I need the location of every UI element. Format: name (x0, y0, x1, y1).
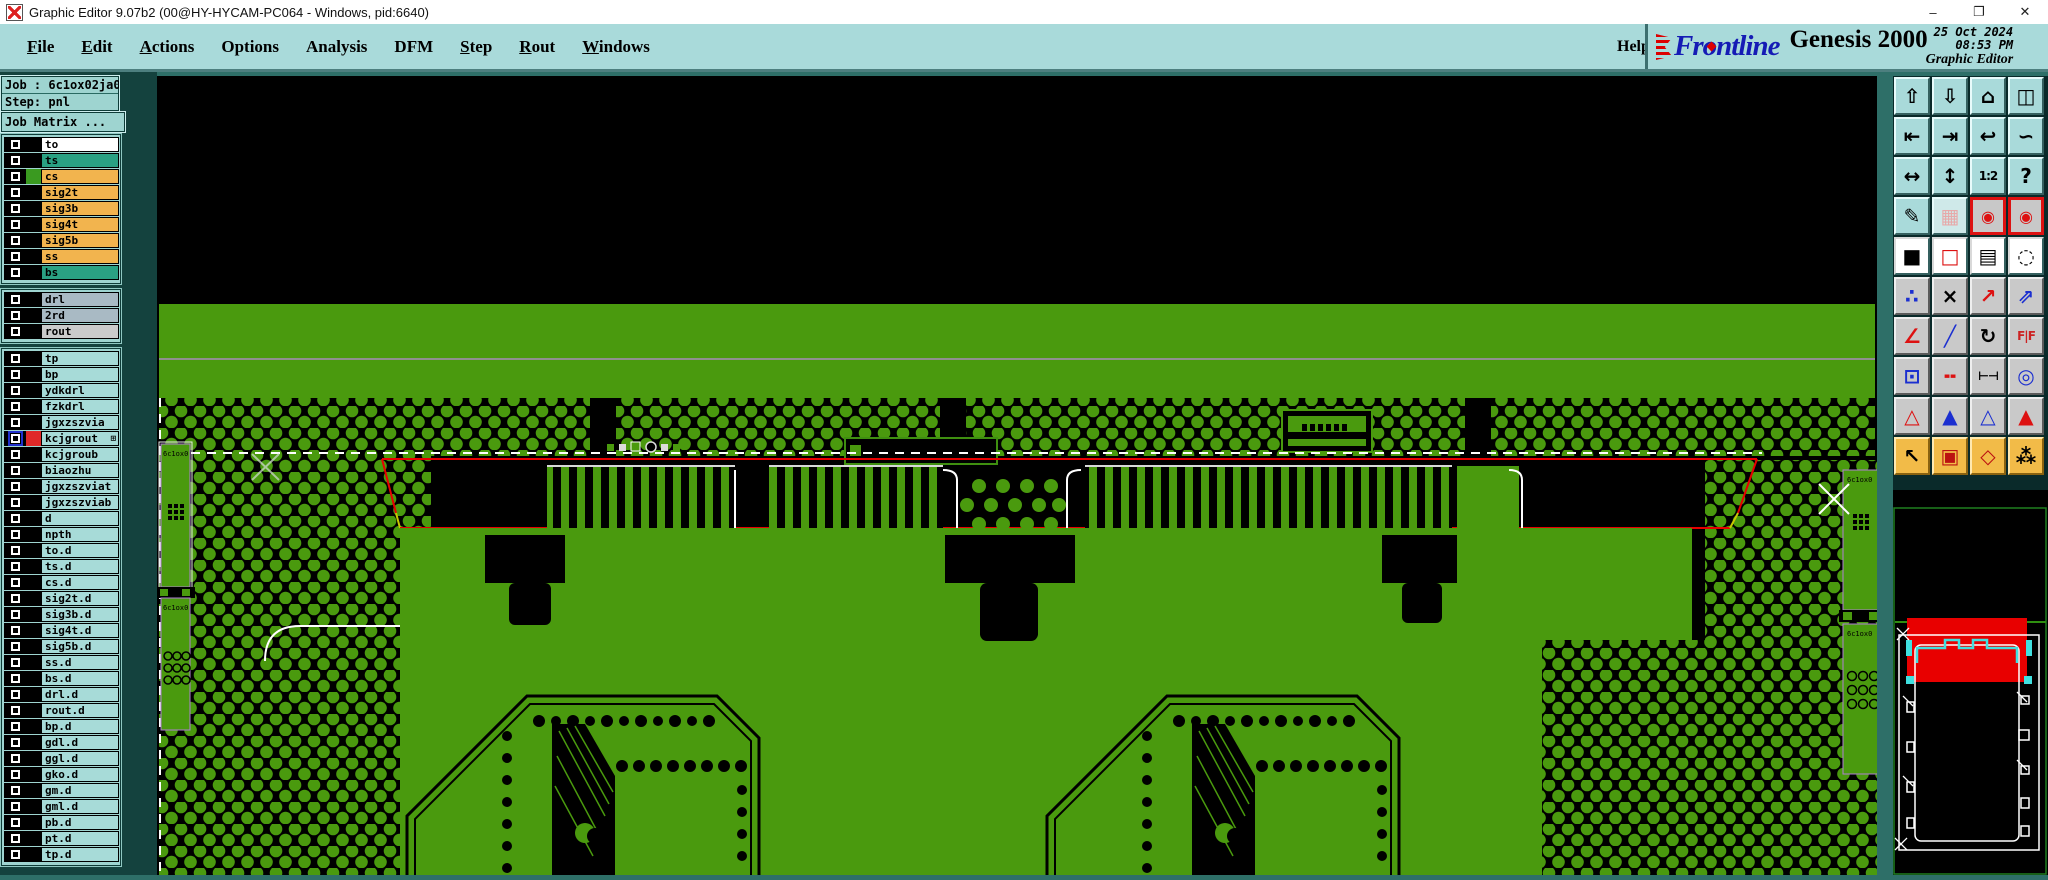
layer-name-label[interactable]: drl.d (41, 687, 119, 702)
layer-name-label[interactable]: tp (41, 351, 119, 366)
move-object-button[interactable]: ↗ (1970, 277, 2006, 315)
layer-name-label[interactable]: to (41, 137, 119, 152)
frame-select-icon: ▣ (1941, 444, 1960, 468)
overview-panel (1893, 490, 2048, 875)
layer-color-swatch[interactable] (26, 527, 41, 542)
layer-visibility-checkbox[interactable] (8, 703, 23, 718)
layer-list: totscssig2tsig3bsig4tsig5bssbsdrl2rdrout… (1, 134, 121, 871)
layer-visibility-checkbox[interactable] (8, 751, 23, 766)
layer-visibility-checkbox[interactable] (8, 527, 23, 542)
zoom-in-view-icon: ⇧ (1904, 84, 1921, 108)
job-info-box: Job : 6c1ox02ja0 Step: pnl (1, 76, 119, 111)
layer-name-label[interactable]: sig3b (41, 201, 119, 216)
layer-row-ss.d[interactable]: ss.d (4, 655, 119, 670)
layer-row-kcjgroub[interactable]: kcjgroub (4, 447, 119, 462)
layer-group: tpbpydkdrlfzkdrljgxzszviakcjgrout⊞kcjgro… (1, 348, 121, 866)
layer-color-swatch[interactable] (26, 463, 41, 478)
main-menu: FileEditActionsOptionsAnalysisDFMStepRou… (0, 37, 650, 57)
capture-dark-button[interactable]: ■ (1894, 237, 1930, 275)
pcb-coupon-box (1282, 410, 1372, 452)
pan-left-button[interactable]: ⇤ (1894, 117, 1930, 155)
layer-visibility-checkbox[interactable] (8, 623, 23, 638)
layer-name-label[interactable]: kcjgrout⊞ (41, 431, 119, 446)
zoom-out-view-icon: ⇩ (1942, 84, 1959, 108)
layer-visibility-checkbox[interactable] (8, 447, 23, 462)
layer-visibility-checkbox[interactable] (8, 799, 23, 814)
undo-view-button[interactable]: ↩ (1970, 117, 2006, 155)
overview-viewport-rect[interactable] (1907, 618, 2027, 682)
layer-row-gko.d[interactable]: gko.d (4, 767, 119, 782)
clock: 25 Oct 202408:53 PM (1934, 26, 2013, 52)
layer-name-label[interactable]: pt.d (41, 831, 119, 846)
layer-row-sig2t.d[interactable]: sig2t.d (4, 591, 119, 606)
frontline-logo: Frontline (1674, 26, 1779, 66)
pcb-copper-band (159, 304, 1875, 398)
layer-visibility-checkbox[interactable] (8, 137, 23, 152)
object-delete-icon: × (1942, 284, 1959, 308)
layer-visibility-checkbox[interactable] (8, 687, 23, 702)
touchup-object-icon: ◎ (2017, 364, 2034, 388)
copy-object-button[interactable]: ⇗ (2008, 277, 2044, 315)
layer-name-label[interactable]: kcjgroub (41, 447, 119, 462)
layer-visibility-checkbox[interactable] (8, 233, 23, 248)
net-connect-icon: ∴ (1905, 284, 1919, 308)
sidebar: Job : 6c1ox02ja0 Step: pnl Job Matrix ..… (0, 72, 157, 875)
layer-visibility-checkbox[interactable] (8, 591, 23, 606)
close-button[interactable]: ✕ (2002, 0, 2048, 24)
product-name: Genesis 2000 (1789, 26, 1927, 54)
layer-visibility-checkbox[interactable] (8, 575, 23, 590)
layer-group: drl2rdrout (1, 289, 121, 343)
layer-name-label[interactable]: gdl.d (41, 735, 119, 750)
move-object-icon: ↗ (1980, 284, 1997, 308)
layer-row-npth[interactable]: npth (4, 527, 119, 542)
measure-line-icon: ╱ (1944, 324, 1956, 348)
layer-visibility-checkbox[interactable] (8, 399, 23, 414)
home-view-button[interactable]: ⌂ (1970, 77, 2006, 115)
layer-color-swatch[interactable] (26, 217, 41, 232)
layer-visibility-checkbox[interactable] (8, 719, 23, 734)
layer-visibility-checkbox[interactable] (8, 292, 23, 307)
layer-color-swatch[interactable] (26, 447, 41, 462)
measure-ruler-button[interactable]: ▤ (1970, 237, 2006, 275)
layer-row-rout[interactable]: rout (4, 324, 119, 339)
layer-row-d[interactable]: d (4, 511, 119, 526)
layer-visibility-checkbox[interactable] (8, 308, 23, 323)
serpentine-view-icon: ∽ (2018, 124, 2035, 148)
layer-name-label[interactable]: ggl.d (41, 751, 119, 766)
layer-name-label[interactable]: 2rd (41, 308, 119, 323)
layer-name-label[interactable]: gko.d (41, 767, 119, 782)
layer-row-ggl.d[interactable]: ggl.d (4, 751, 119, 766)
layer-name-label[interactable]: to.d (41, 543, 119, 558)
layer-row-bs.d[interactable]: bs.d (4, 671, 119, 686)
layer-row-cs.d[interactable]: cs.d (4, 575, 119, 590)
rotate-object-button[interactable]: ↻ (1970, 317, 2006, 355)
frontline-logo-icon (1656, 34, 1672, 60)
zoom-out-view-button[interactable]: ⇩ (1932, 77, 1968, 115)
break-line-button[interactable]: ╍ (1932, 357, 1968, 395)
layer-name-label[interactable]: rout (41, 324, 119, 339)
net-connect-button[interactable]: ∴ (1894, 277, 1930, 315)
layer-name-label[interactable]: sig2t (41, 185, 119, 200)
layer-color-swatch[interactable] (26, 265, 41, 280)
layer-color-swatch[interactable] (26, 431, 41, 446)
layer-visibility-checkbox[interactable] (8, 169, 23, 184)
layer-row-to[interactable]: to (4, 137, 119, 152)
window-title: Graphic Editor 9.07b2 (00@HY-HYCAM-PC064… (29, 5, 429, 20)
layer-color-swatch[interactable] (26, 153, 41, 168)
pan-right-button[interactable]: ⇥ (1932, 117, 1968, 155)
serpentine-view-button[interactable]: ∽ (2008, 117, 2044, 155)
menu-dfm[interactable]: DFM (394, 37, 433, 56)
layer-color-swatch[interactable] (26, 137, 41, 152)
layer-visibility-checkbox[interactable] (8, 671, 23, 686)
minimize-button[interactable]: – (1910, 0, 1956, 24)
context-help-button[interactable]: ? (2008, 157, 2044, 195)
layer-row-drl.d[interactable]: drl.d (4, 687, 119, 702)
layer-visibility-checkbox[interactable] (8, 415, 23, 430)
layer-row-bs[interactable]: bs (4, 265, 119, 280)
layer-name-label[interactable]: jgxzszviab (41, 495, 119, 510)
layer-row-to.d[interactable]: to.d (4, 543, 119, 558)
measure-line-button[interactable]: ╱ (1932, 317, 1968, 355)
layer-row-bp.d[interactable]: bp.d (4, 719, 119, 734)
layer-color-swatch[interactable] (26, 607, 41, 622)
layer-color-swatch[interactable] (26, 399, 41, 414)
menu-edit[interactable]: Edit (81, 37, 112, 56)
layer-color-swatch[interactable] (26, 324, 41, 339)
menu-bar: FileEditActionsOptionsAnalysisDFMStepRou… (0, 24, 2048, 72)
layer-row-bp[interactable]: bp (4, 367, 119, 382)
layer-visibility-checkbox[interactable] (8, 639, 23, 654)
layer-row-pb.d[interactable]: pb.d (4, 815, 119, 830)
layer-name-label[interactable]: tp.d (41, 847, 119, 862)
layer-name-label[interactable]: ss (41, 249, 119, 264)
layer-name-label[interactable]: npth (41, 527, 119, 542)
layer-visibility-checkbox[interactable] (8, 217, 23, 232)
select-mode-b-icon: ▲ (1942, 404, 1957, 428)
layers-display-b-button[interactable]: ◉ (2008, 197, 2044, 235)
layer-row-gdl.d[interactable]: gdl.d (4, 735, 119, 750)
layer-visibility-checkbox[interactable] (8, 495, 23, 510)
layers-display-a-icon: ◉ (1981, 207, 1995, 226)
layer-name-label[interactable]: ss.d (41, 655, 119, 670)
editor-setup-button[interactable]: ✎ (1894, 197, 1930, 235)
layer-name-label[interactable]: sig5b (41, 233, 119, 248)
touchup-object-button[interactable]: ◎ (2008, 357, 2044, 395)
layer-row-jgxzszviab[interactable]: jgxzszviab (4, 495, 119, 510)
layer-color-swatch[interactable] (26, 169, 41, 184)
select-mode-b-button[interactable]: ▲ (1932, 397, 1968, 435)
layer-color-swatch[interactable] (26, 735, 41, 750)
layer-name-label[interactable]: rout.d (41, 703, 119, 718)
rotate-object-icon: ↻ (1980, 324, 1997, 348)
layer-color-swatch[interactable] (26, 591, 41, 606)
layer-row-sig2t[interactable]: sig2t (4, 185, 119, 200)
menu-options[interactable]: Options (221, 37, 279, 56)
pcb-target-box (845, 438, 997, 464)
pointer-select-button[interactable]: ↖ (1894, 437, 1930, 475)
app-icon (6, 4, 23, 21)
layer-visibility-checkbox[interactable] (8, 185, 23, 200)
layer-name-label[interactable]: gml.d (41, 799, 119, 814)
grid-toggle-button[interactable]: ▦ (1932, 197, 1968, 235)
layer-name-label[interactable]: d (41, 511, 119, 526)
layer-row-ss[interactable]: ss (4, 249, 119, 264)
svg-text:6c1ox0: 6c1ox0 (163, 450, 188, 458)
layer-visibility-checkbox[interactable] (8, 463, 23, 478)
layer-color-swatch[interactable] (26, 703, 41, 718)
layer-name-label[interactable]: bs (41, 265, 119, 280)
pcb-canvas[interactable]: 6c1ox0 6c1ox0 6c1ox0 6c1ox0 (157, 76, 1877, 875)
layer-color-swatch[interactable] (26, 751, 41, 766)
layer-row-sig4t.d[interactable]: sig4t.d (4, 623, 119, 638)
layer-visibility-checkbox[interactable] (8, 479, 23, 494)
measure-gap-button[interactable]: ⊢⊣ (1970, 357, 2006, 395)
layer-name-label[interactable]: bs.d (41, 671, 119, 686)
fit-all-icon: ↔ (1904, 164, 1921, 188)
layer-row-sig3b[interactable]: sig3b (4, 201, 119, 216)
layer-visibility-checkbox[interactable] (8, 783, 23, 798)
branding-panel: Frontline Genesis 2000 25 Oct 202408:53 … (1645, 24, 2048, 69)
layer-name-label[interactable]: ydkdrl (41, 383, 119, 398)
layer-visibility-checkbox[interactable] (8, 543, 23, 558)
layer-color-swatch[interactable] (26, 671, 41, 686)
scale-1-2-button[interactable]: 1:2 (1970, 157, 2006, 195)
layer-visibility-checkbox[interactable] (8, 511, 23, 526)
svg-text:6c1ox0: 6c1ox0 (1847, 630, 1872, 638)
net-select-icon: ⁂ (2016, 444, 2036, 468)
select-mode-d-button[interactable]: ▲ (2008, 397, 2044, 435)
layer-visibility-checkbox[interactable] (8, 831, 23, 846)
step-label: Step: pnl (2, 94, 118, 110)
layer-row-sig5b.d[interactable]: sig5b.d (4, 639, 119, 654)
pointer-select-icon: ↖ (1904, 444, 1921, 468)
menu-step[interactable]: Step (460, 37, 492, 56)
layer-color-swatch[interactable] (26, 292, 41, 307)
maximize-button[interactable]: ❐ (1956, 0, 2002, 24)
title-bar: Graphic Editor 9.07b2 (00@HY-HYCAM-PC064… (0, 0, 2048, 25)
layer-color-swatch[interactable] (26, 639, 41, 654)
layer-color-swatch[interactable] (26, 367, 41, 382)
layer-color-swatch[interactable] (26, 185, 41, 200)
menu-file[interactable]: File (27, 37, 54, 56)
layer-row-tp.d[interactable]: tp.d (4, 847, 119, 862)
layer-row-sig4t[interactable]: sig4t (4, 217, 119, 232)
layer-row-biaozhu[interactable]: biaozhu (4, 463, 119, 478)
layer-color-swatch[interactable] (26, 799, 41, 814)
break-line-icon: ╍ (1944, 364, 1956, 388)
layer-color-swatch[interactable] (26, 559, 41, 574)
layer-visibility-checkbox[interactable] (8, 351, 23, 366)
layer-color-swatch[interactable] (26, 479, 41, 494)
menu-analysis[interactable]: Analysis (306, 37, 367, 56)
svg-text:6c1ox0: 6c1ox0 (163, 604, 188, 612)
layer-color-swatch[interactable] (26, 543, 41, 558)
layer-color-swatch[interactable] (26, 415, 41, 430)
resize-object-icon: ⊡ (1904, 364, 1921, 388)
layer-name-label[interactable]: cs.d (41, 575, 119, 590)
layer-row-sig3b.d[interactable]: sig3b.d (4, 607, 119, 622)
measure-gap-icon: ⊢⊣ (1978, 369, 1998, 383)
layer-color-swatch[interactable] (26, 815, 41, 830)
mirror-object-button[interactable]: F|F (2008, 317, 2044, 355)
layer-name-label[interactable]: ts.d (41, 559, 119, 574)
layer-visibility-checkbox[interactable] (8, 735, 23, 750)
layer-expand-icon[interactable]: ⊞ (111, 433, 116, 446)
layer-visibility-checkbox[interactable] (8, 559, 23, 574)
net-select-button[interactable]: ⁂ (2008, 437, 2044, 475)
layer-color-swatch[interactable] (26, 767, 41, 782)
select-mode-c-button[interactable]: △ (1970, 397, 2006, 435)
layer-name-label[interactable]: jgxzszvia (41, 415, 119, 430)
capture-outline-button[interactable]: □ (1932, 237, 1968, 275)
layer-visibility-checkbox[interactable] (8, 367, 23, 382)
zoom-in-view-button[interactable]: ⇧ (1894, 77, 1930, 115)
layer-color-swatch[interactable] (26, 383, 41, 398)
select-mode-d-icon: ▲ (2018, 404, 2033, 428)
pan-right-icon: ⇥ (1942, 124, 1959, 148)
layer-name-label[interactable]: sig2t.d (41, 591, 119, 606)
layer-visibility-checkbox[interactable] (8, 767, 23, 782)
layer-name-label[interactable]: bp (41, 367, 119, 382)
mirror-object-icon: F|F (2017, 329, 2035, 343)
capture-dark-icon: ■ (1903, 244, 1922, 268)
layer-row-fzkdrl[interactable]: fzkdrl (4, 399, 119, 414)
layer-name-label[interactable]: sig4t.d (41, 623, 119, 638)
layer-name-label[interactable]: sig5b.d (41, 639, 119, 654)
layer-row-tp[interactable]: tp (4, 351, 119, 366)
layer-visibility-checkbox[interactable] (8, 383, 23, 398)
layer-name-label[interactable]: sig3b.d (41, 607, 119, 622)
layer-visibility-checkbox[interactable] (8, 201, 23, 216)
measure-angle-icon: ∠ (1903, 324, 1921, 348)
canvas-area: 6c1ox0 6c1ox0 6c1ox0 6c1ox0 (157, 76, 1877, 875)
layer-color-swatch[interactable] (26, 308, 41, 323)
layer-row-pt.d[interactable]: pt.d (4, 831, 119, 846)
menu-rout[interactable]: Rout (519, 37, 555, 56)
layer-row-sig5b[interactable]: sig5b (4, 233, 119, 248)
layer-row-ts[interactable]: ts (4, 153, 119, 168)
scale-1-2-icon: 1:2 (1979, 169, 1998, 183)
pcb-coupon-left: 6c1ox0 6c1ox0 (157, 442, 195, 730)
layer-color-swatch[interactable] (26, 249, 41, 264)
layer-color-swatch[interactable] (26, 783, 41, 798)
layer-name-label[interactable]: gm.d (41, 783, 119, 798)
copy-object-icon: ⇗ (2018, 284, 2035, 308)
grid-toggle-icon: ▦ (1941, 204, 1960, 228)
menu-windows[interactable]: Windows (582, 37, 650, 56)
svg-text:6c1ox0: 6c1ox0 (1847, 476, 1872, 484)
layer-row-cs[interactable]: cs (4, 169, 119, 184)
product-subtitle: Graphic Editor (1789, 52, 2013, 68)
layers-display-b-icon: ◉ (2019, 207, 2033, 226)
layer-color-swatch[interactable] (26, 233, 41, 248)
overview-navigator[interactable] (1893, 490, 2048, 875)
layer-color-swatch[interactable] (26, 847, 41, 862)
layer-name-label[interactable]: jgxzszviat (41, 479, 119, 494)
polygon-select-icon: ◇ (1980, 444, 1995, 468)
context-help-icon: ? (2020, 164, 2032, 188)
layer-color-swatch[interactable] (26, 623, 41, 638)
layer-row-ts.d[interactable]: ts.d (4, 559, 119, 574)
layer-row-jgxzszviat[interactable]: jgxzszviat (4, 479, 119, 494)
job-matrix-button[interactable]: Job Matrix ... (1, 112, 125, 132)
layer-row-jgxzszvia[interactable]: jgxzszvia (4, 415, 119, 430)
layer-name-label[interactable]: sig4t (41, 217, 119, 232)
layer-visibility-checkbox[interactable] (8, 153, 23, 168)
layer-color-swatch[interactable] (26, 575, 41, 590)
layer-color-swatch[interactable] (26, 655, 41, 670)
menu-actions[interactable]: Actions (140, 37, 195, 56)
center-view-icon: ↕ (1942, 164, 1959, 188)
select-mode-a-button[interactable]: △ (1894, 397, 1930, 435)
layer-color-swatch[interactable] (26, 511, 41, 526)
split-window-xy-icon: ◫ (2017, 84, 2036, 108)
layer-row-gml.d[interactable]: gml.d (4, 799, 119, 814)
layer-visibility-checkbox[interactable] (8, 815, 23, 830)
layer-row-drl[interactable]: drl (4, 292, 119, 307)
layer-name-label[interactable]: bp.d (41, 719, 119, 734)
pad-dashed-icon: ◌ (2017, 244, 2034, 268)
undo-view-icon: ↩ (1980, 124, 1997, 148)
layers-display-a-button[interactable]: ◉ (1970, 197, 2006, 235)
layer-name-label[interactable]: pb.d (41, 815, 119, 830)
layer-row-2rd[interactable]: 2rd (4, 308, 119, 323)
editor-setup-icon: ✎ (1904, 204, 1921, 228)
center-view-button[interactable]: ↕ (1932, 157, 1968, 195)
home-view-icon: ⌂ (1981, 84, 1995, 108)
resize-object-button[interactable]: ⊡ (1894, 357, 1930, 395)
layer-color-swatch[interactable] (26, 831, 41, 846)
layer-name-label[interactable]: drl (41, 292, 119, 307)
layer-visibility-checkbox[interactable] (8, 847, 23, 862)
select-mode-a-icon: △ (1904, 404, 1919, 428)
layer-name-label[interactable]: cs (41, 169, 119, 184)
layer-name-label[interactable]: biaozhu (41, 463, 119, 478)
pad-dashed-button[interactable]: ◌ (2008, 237, 2044, 275)
layer-visibility-checkbox[interactable] (8, 249, 23, 264)
pan-left-icon: ⇤ (1904, 124, 1921, 148)
polygon-select-button[interactable]: ◇ (1970, 437, 2006, 475)
layer-row-gm.d[interactable]: gm.d (4, 783, 119, 798)
layer-color-swatch[interactable] (26, 351, 41, 366)
layer-visibility-checkbox[interactable] (8, 655, 23, 670)
frame-select-button[interactable]: ▣ (1932, 437, 1968, 475)
layer-color-swatch[interactable] (26, 495, 41, 510)
layer-row-rout.d[interactable]: rout.d (4, 703, 119, 718)
object-delete-button[interactable]: × (1932, 277, 1968, 315)
measure-ruler-icon: ▤ (1979, 244, 1998, 268)
layer-color-swatch[interactable] (26, 201, 41, 216)
fit-all-button[interactable]: ↔ (1894, 157, 1930, 195)
layer-row-ydkdrl[interactable]: ydkdrl (4, 383, 119, 398)
layer-visibility-checkbox[interactable] (8, 324, 23, 339)
layer-visibility-checkbox[interactable] (8, 265, 23, 280)
layer-group: totscssig2tsig3bsig4tsig5bssbs (1, 134, 121, 284)
layer-row-kcjgrout[interactable]: kcjgrout⊞ (4, 431, 119, 446)
layer-name-label[interactable]: fzkdrl (41, 399, 119, 414)
layer-name-label[interactable]: ts (41, 153, 119, 168)
capture-outline-icon: □ (1941, 244, 1960, 268)
layer-visibility-checkbox[interactable] (8, 431, 23, 446)
layer-color-swatch[interactable] (26, 719, 41, 734)
layer-color-swatch[interactable] (26, 687, 41, 702)
layer-visibility-checkbox[interactable] (8, 607, 23, 622)
measure-angle-button[interactable]: ∠ (1894, 317, 1930, 355)
split-window-xy-button[interactable]: ◫ (2008, 77, 2044, 115)
